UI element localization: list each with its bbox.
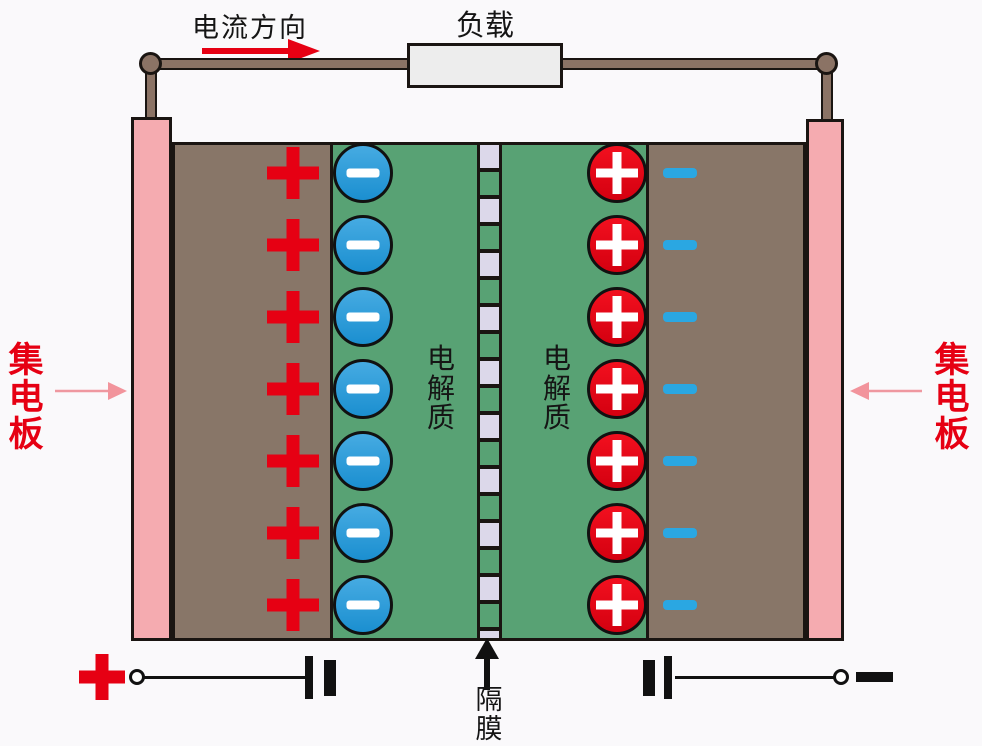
collector-label-left: 集电板 — [6, 342, 46, 453]
supercapacitor-diagram: 电流方向 负载 电解质 电解质 集电板 集电板 — [0, 0, 982, 746]
positive-ion-icon — [587, 215, 647, 275]
negative-charge-icon — [663, 528, 697, 538]
negative-terminal-symbol — [856, 672, 893, 682]
positive-ion-icon — [587, 359, 647, 419]
positive-ion-icon — [587, 575, 647, 635]
negative-ion-icon — [333, 359, 393, 419]
positive-charge-icon — [267, 435, 319, 487]
positive-charge-icon — [267, 363, 319, 415]
positive-charge-icon — [267, 579, 319, 631]
negative-ion-icon — [333, 575, 393, 635]
positive-ion-icon — [587, 503, 647, 563]
positive-charge-icon — [267, 219, 319, 271]
negative-charge-icon — [663, 456, 697, 466]
positive-terminal-symbol — [79, 654, 125, 700]
collector-pointer-arrow-right — [848, 380, 924, 402]
positive-charge-icon — [267, 147, 319, 199]
positive-charge-icon — [267, 507, 319, 559]
lead-wire-left — [144, 676, 306, 679]
negative-ion-icon — [333, 287, 393, 347]
load-resistor — [407, 43, 563, 88]
negative-ion-icon — [333, 215, 393, 275]
negative-charge-icon — [663, 384, 697, 394]
negative-charge-icon — [663, 600, 697, 610]
separator-label: 隔膜 — [474, 686, 504, 743]
cation-column — [587, 143, 647, 635]
negative-ion-icon — [333, 431, 393, 491]
negative-ion-icon — [333, 143, 393, 203]
negative-ion-icon — [333, 503, 393, 563]
collector-pointer-arrow-left — [53, 380, 129, 402]
positive-ion-icon — [587, 143, 647, 203]
negative-charge-icon — [663, 312, 697, 322]
positive-ion-icon — [587, 431, 647, 491]
negative-charge-icon — [663, 168, 697, 178]
load-label: 负载 — [407, 2, 563, 44]
wire-junction-dot-left — [139, 52, 162, 75]
separator-membrane — [477, 145, 502, 638]
cathode-surface-charge-column — [663, 168, 697, 610]
electrolyte-label-left: 电解质 — [426, 345, 456, 434]
collector-plate-left — [131, 117, 172, 641]
anode-surface-charge-column — [267, 147, 319, 631]
wire-junction-dot-right — [815, 52, 838, 75]
capacitor-plate-left-outer — [305, 656, 313, 699]
positive-ion-icon — [587, 287, 647, 347]
negative-charge-icon — [663, 240, 697, 250]
lead-wire-right — [675, 676, 834, 679]
collector-label-right: 集电板 — [932, 342, 972, 453]
collector-plate-right — [806, 119, 844, 641]
capacitor-plate-right-inner — [643, 660, 655, 696]
separator-arrow-icon — [473, 638, 501, 692]
capacitor-plate-right-outer — [664, 656, 672, 699]
terminal-node-right — [833, 669, 849, 685]
anion-column — [333, 143, 393, 635]
capacitor-plate-left-inner — [324, 660, 336, 696]
terminal-node-left — [129, 669, 145, 685]
electrolyte-label-right: 电解质 — [542, 345, 572, 434]
positive-charge-icon — [267, 291, 319, 343]
